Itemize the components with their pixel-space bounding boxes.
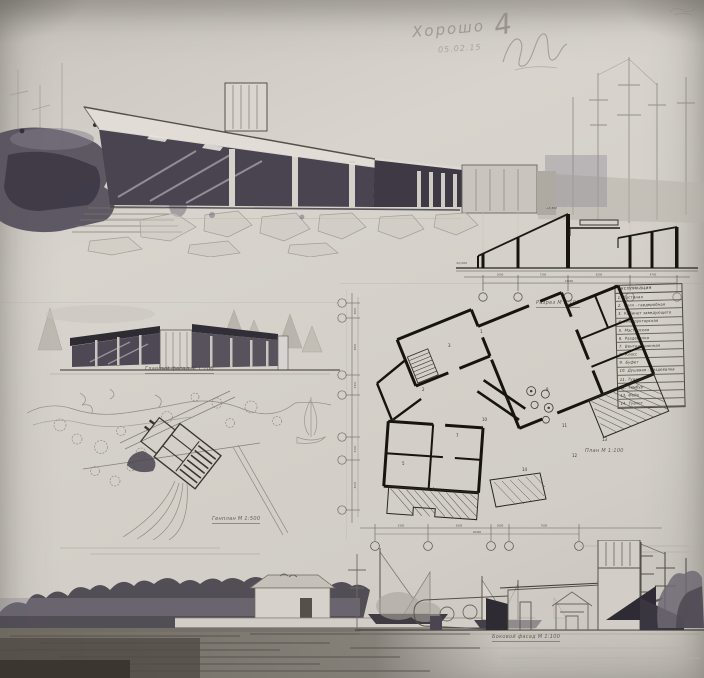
corner-note-scribble [668,2,702,18]
plan-dim: 5300 [398,524,405,528]
plan-dim: 1800 [497,524,504,528]
section-clerestory [570,220,620,236]
site-sailboat-sketch [297,397,325,443]
section-total-dim: 21600 [565,279,574,283]
paper-streaks [470,648,700,668]
side-facade-right-trees [657,571,704,628]
plan-room-numbers: 1324567109811121314 [392,329,608,492]
facade-entry [160,330,192,368]
room-number: 13 [602,437,608,442]
site-paths [123,481,187,540]
side-facade-caption: Боковой фасад М 1:100 [492,634,560,642]
site-plan-drawing [25,385,335,540]
room-number: 7 [456,433,459,438]
boathouse [250,575,335,618]
plan-total-dim: 20400 [473,530,482,534]
plan-dim: 7000 [541,524,548,528]
plan-dim-vertical: 5200 [353,445,357,452]
room-number: 12 [572,453,578,458]
presentation-board: Хорошо 4 05.02.15 [0,0,704,678]
grade-date: 05.02.15 [438,42,482,54]
facade-right-wing [192,324,288,370]
site-ink-shadow [127,451,155,472]
room-number: 2 [422,387,425,392]
plan-dim: 6300 [456,524,463,528]
floor-plan-drawing: 36004800240052004000 [330,285,670,553]
site-shoreline [27,389,331,427]
section-dim: 3500 [497,273,504,277]
facade-caption: Главный фасад М 1:100 [145,366,214,374]
plan-vertical-dims [346,293,360,523]
section-left-hall [478,214,570,268]
plan-left-dim-labels: 36004800240052004000 [353,307,357,488]
section-guides [483,204,677,268]
building-base-shadow [110,207,460,210]
site-plan-caption: Генплан М 1:500 [212,516,260,524]
room-number: 5 [402,461,405,466]
plan-walls-main [365,285,654,471]
site-roads [83,391,260,469]
room-number: 10 [482,417,488,422]
plan-bottom-dims [360,524,662,541]
site-building-footprint [134,408,221,489]
section-dim: 4700 [650,273,657,277]
room-number: 3 [448,343,451,348]
plan-terrace-mid [490,473,546,507]
facade-left-wing [70,326,160,367]
section-right-wing [618,227,679,268]
facade-drawing [10,290,345,395]
section-dim-labels: 3500720062004700 [497,273,657,277]
water-darkest-corner [0,660,130,678]
plan-dim-vertical: 4000 [353,481,357,488]
plan-vertical-bubbles [338,299,346,514]
photo-vignette [0,0,90,45]
section-dim: 7200 [540,273,547,277]
plan-caption: План М 1:100 [585,448,624,455]
waterfront-panorama [0,540,704,678]
room-number: 11 [562,423,568,428]
room-number: 14 [522,467,528,472]
roof-tower [225,83,267,131]
foreground-rocks [88,211,478,257]
plan-dim-vertical: 3600 [353,307,357,314]
section-dim: 6200 [596,273,603,277]
plan-walls-secondary [384,421,483,492]
level-zero: ±0,000 [456,261,467,265]
plan-dim-vertical: 2400 [353,381,357,388]
room-number: 1 [480,329,483,334]
grade-annotation: Хорошо [411,17,485,41]
plan-dim-vertical: 4800 [353,343,357,350]
plan-bottom-dim-labels: 5300630018007000 [398,524,548,528]
level-top: +3,300 [546,206,557,210]
